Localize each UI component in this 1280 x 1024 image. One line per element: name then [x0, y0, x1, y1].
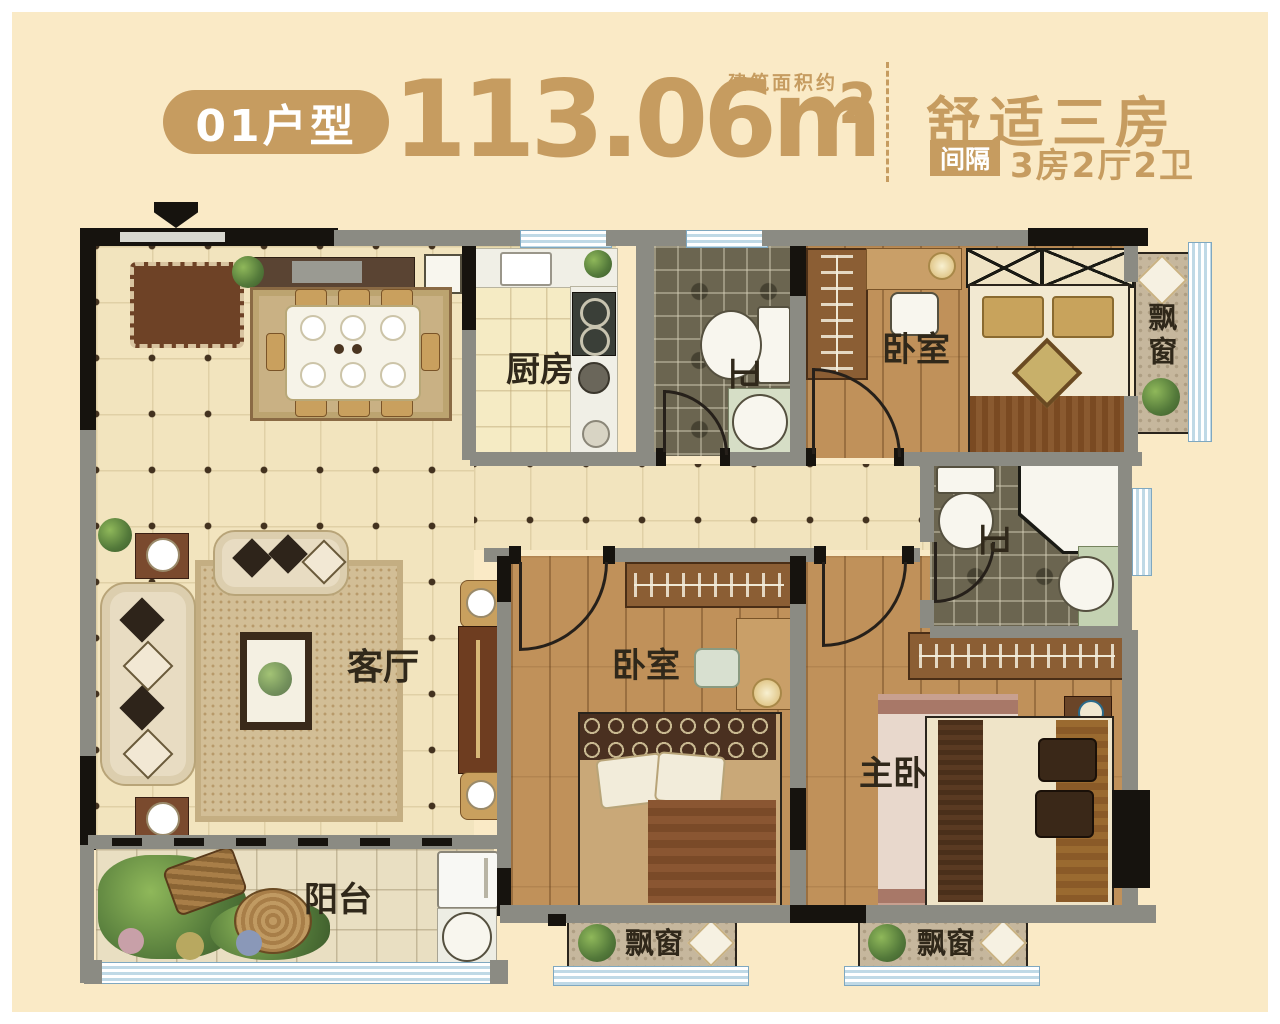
wall-segment — [462, 246, 476, 332]
tv-cabinet-handle — [476, 640, 480, 758]
bedroom-mid-cushion — [694, 648, 740, 688]
lamp-icon — [752, 678, 782, 708]
bay-bottomright-window — [844, 966, 1040, 986]
bed-master-runner — [938, 720, 983, 902]
wall-segment — [1124, 396, 1138, 458]
wardrobe-box-icon — [1042, 248, 1134, 288]
unit-badge-label: 01户型 — [195, 90, 356, 154]
room-label-bath-top: 卫 — [726, 352, 761, 396]
bed-pillow — [654, 751, 726, 807]
balcony-sliding-door — [112, 838, 480, 846]
room-label-kitchen: 厨房 — [490, 352, 590, 389]
washing-machine-door — [484, 858, 488, 898]
wall-segment — [790, 556, 806, 916]
wardrobe-bedroom-mid — [625, 562, 793, 608]
wall-segment — [920, 600, 934, 628]
place-setting — [380, 362, 406, 388]
wall-segment — [920, 462, 934, 542]
bath-top-window — [686, 230, 768, 248]
door-leaf — [519, 562, 522, 648]
coffee-table-decor — [258, 662, 292, 696]
area-note: 建筑面积约 — [728, 68, 838, 95]
room-label-bay-left: 飘窗 — [614, 928, 694, 960]
balcony-window — [100, 962, 494, 984]
wall-segment — [762, 230, 1034, 246]
wall-segment — [790, 556, 806, 604]
wall-segment — [1118, 460, 1132, 630]
room-label-balcony: 阳台 — [288, 882, 388, 919]
wall-segment — [790, 905, 866, 923]
bath-mid-window — [1132, 488, 1152, 576]
bay-right-window — [1188, 242, 1212, 442]
bay-right-plant-icon — [1142, 378, 1180, 416]
room-label-bay-bottomright: 飘窗 — [906, 928, 986, 960]
side-table-plate — [146, 802, 180, 836]
wall-segment — [490, 960, 508, 984]
kitchen-bowl — [582, 420, 610, 448]
flower-ball — [118, 928, 144, 954]
door-leaf — [822, 562, 825, 644]
entry-rug — [130, 262, 244, 348]
toilet-mid-tank — [936, 466, 996, 494]
washing-machine-icon — [437, 851, 499, 909]
kitchen-window — [520, 230, 612, 248]
door-leaf — [663, 390, 666, 452]
wall-segment — [636, 246, 654, 454]
wardrobe-bedroom-top — [806, 248, 868, 380]
wall-segment — [790, 788, 806, 850]
wall-segment — [728, 452, 812, 466]
stove-burner — [580, 298, 610, 328]
dining-chair — [266, 333, 285, 371]
dining-chair — [421, 333, 440, 371]
wall-segment — [80, 430, 96, 760]
bath-top-sink-icon — [732, 394, 788, 450]
wall-segment — [497, 548, 511, 916]
place-setting — [340, 362, 366, 388]
plant-living-icon — [98, 518, 132, 552]
room-label-bedroom-top: 卧室 — [866, 332, 966, 369]
centerpiece — [352, 344, 362, 354]
wall-segment — [80, 228, 96, 433]
wall-segment — [334, 230, 524, 246]
wall-segment — [930, 626, 1126, 638]
room-label-bedroom-mid: 卧室 — [596, 648, 696, 685]
entry-gap — [120, 232, 225, 242]
wall-segment — [1028, 228, 1148, 246]
wall-segment — [1112, 790, 1150, 888]
door-leaf — [934, 542, 937, 600]
wall-segment — [900, 452, 1142, 466]
bed-pillow — [982, 296, 1044, 338]
spec-text: 3房2厅2卫 — [1010, 138, 1195, 187]
spec-tag: 间隔 — [930, 140, 1000, 176]
bath-mid-sink-icon — [1058, 556, 1114, 612]
spec-tag-label: 间隔 — [940, 140, 990, 176]
sideboard-inset — [292, 261, 362, 283]
place-setting — [300, 315, 326, 341]
plant-kitchen-icon — [584, 250, 612, 278]
entry-arrow-icon — [154, 202, 198, 228]
area-superscript: 2 — [838, 72, 877, 137]
header-divider — [886, 62, 889, 182]
unit-badge: 01户型 — [163, 90, 389, 154]
kitchen-sink-icon — [500, 252, 552, 286]
room-label-master: 主卧 — [838, 756, 948, 793]
wall-segment — [790, 296, 806, 456]
bay-bottomright-plant-icon — [868, 924, 906, 962]
bay-left-window — [553, 966, 749, 986]
lamp-icon — [466, 780, 496, 810]
flower-ball — [176, 932, 204, 960]
bed-pillow — [1035, 790, 1094, 838]
place-setting — [380, 315, 406, 341]
room-label-living: 客厅 — [328, 648, 438, 688]
hallway-floor — [474, 464, 934, 550]
wall-segment — [84, 960, 102, 984]
bed-blanket — [648, 800, 776, 903]
plant-dining-icon — [232, 256, 264, 288]
side-table-plate — [146, 538, 180, 572]
lamp-icon — [928, 252, 956, 280]
wardrobe-master — [908, 632, 1126, 680]
wardrobe-box-icon — [966, 248, 1042, 288]
centerpiece — [334, 344, 344, 354]
wall-segment — [609, 548, 818, 562]
lamp-icon — [466, 588, 496, 618]
bed-pillow — [1052, 296, 1114, 338]
wall-segment — [1124, 246, 1138, 282]
wall-segment — [548, 914, 566, 926]
door-leaf — [812, 368, 815, 454]
bed-pillow — [1038, 738, 1097, 782]
place-setting — [340, 315, 366, 341]
room-label-bay-right: 飘窗 — [1144, 302, 1176, 370]
place-setting — [300, 362, 326, 388]
bay-left-plant-icon — [578, 924, 616, 962]
room-label-bath-mid: 卫 — [976, 518, 1011, 562]
wall-segment — [790, 246, 806, 298]
balcony-basin-icon — [442, 912, 492, 962]
flower-ball — [236, 930, 262, 956]
floorplan-page: 01户型 113.06m 2 建筑面积约 舒适三房 间隔 3房2厅2卫 — [0, 0, 1280, 1024]
wall-segment — [462, 330, 476, 460]
wall-segment — [470, 452, 660, 466]
wall-segment — [606, 230, 690, 246]
